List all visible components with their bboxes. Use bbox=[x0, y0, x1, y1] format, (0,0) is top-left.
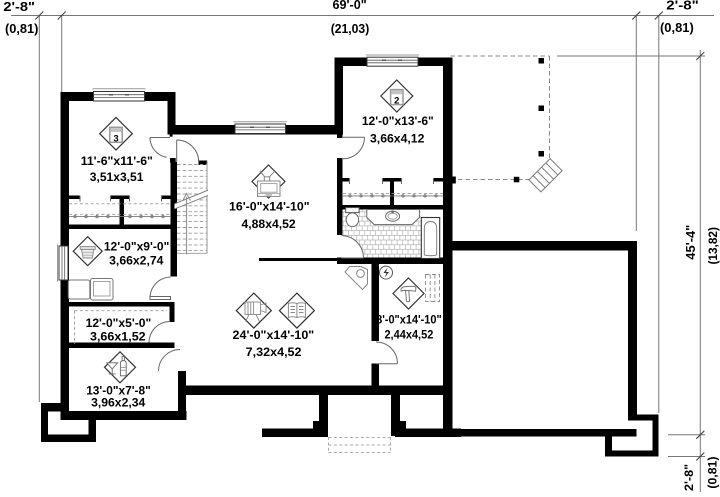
svg-text:24'-0"x14'-10": 24'-0"x14'-10" bbox=[233, 328, 315, 342]
svg-text:3,66x2,74: 3,66x2,74 bbox=[109, 254, 163, 268]
svg-text:(0,81): (0,81) bbox=[5, 21, 39, 36]
svg-text:11'-6"x11'-6": 11'-6"x11'-6" bbox=[81, 154, 153, 168]
svg-text:2'-8": 2'-8" bbox=[3, 0, 35, 14]
svg-text:2,44x4,52: 2,44x4,52 bbox=[384, 327, 433, 341]
svg-text:3,51x3,51: 3,51x3,51 bbox=[90, 170, 144, 184]
svg-text:8'-0"x14'-10": 8'-0"x14'-10" bbox=[376, 312, 442, 326]
svg-text:4,88x4,52: 4,88x4,52 bbox=[242, 217, 296, 231]
svg-text:(21,03): (21,03) bbox=[331, 21, 370, 36]
svg-text:12'-0"x9'-0": 12'-0"x9'-0" bbox=[104, 240, 170, 254]
svg-text:3,66x4,12: 3,66x4,12 bbox=[370, 131, 425, 145]
svg-text:12'-0"x13'-6": 12'-0"x13'-6" bbox=[362, 114, 434, 128]
svg-text:3,66x1,52: 3,66x1,52 bbox=[90, 330, 146, 344]
svg-text:2'-8": 2'-8" bbox=[682, 464, 696, 491]
svg-text:69'-0": 69'-0" bbox=[333, 0, 367, 12]
svg-text:16'-0"x14'-10": 16'-0"x14'-10" bbox=[229, 199, 310, 213]
svg-text:3,96x2,34: 3,96x2,34 bbox=[91, 396, 145, 410]
svg-text:(13,82): (13,82) bbox=[706, 227, 720, 264]
svg-text:(0,81): (0,81) bbox=[660, 20, 694, 35]
svg-text:(0,81): (0,81) bbox=[706, 457, 720, 489]
svg-text:3: 3 bbox=[113, 133, 118, 144]
svg-text:2'-8": 2'-8" bbox=[666, 0, 699, 12]
svg-text:7,32x4,52: 7,32x4,52 bbox=[246, 345, 302, 359]
svg-text:2: 2 bbox=[394, 96, 399, 107]
svg-text:12'-0"x5'-0": 12'-0"x5'-0" bbox=[86, 316, 152, 330]
svg-text:45'-4": 45'-4" bbox=[683, 225, 698, 260]
